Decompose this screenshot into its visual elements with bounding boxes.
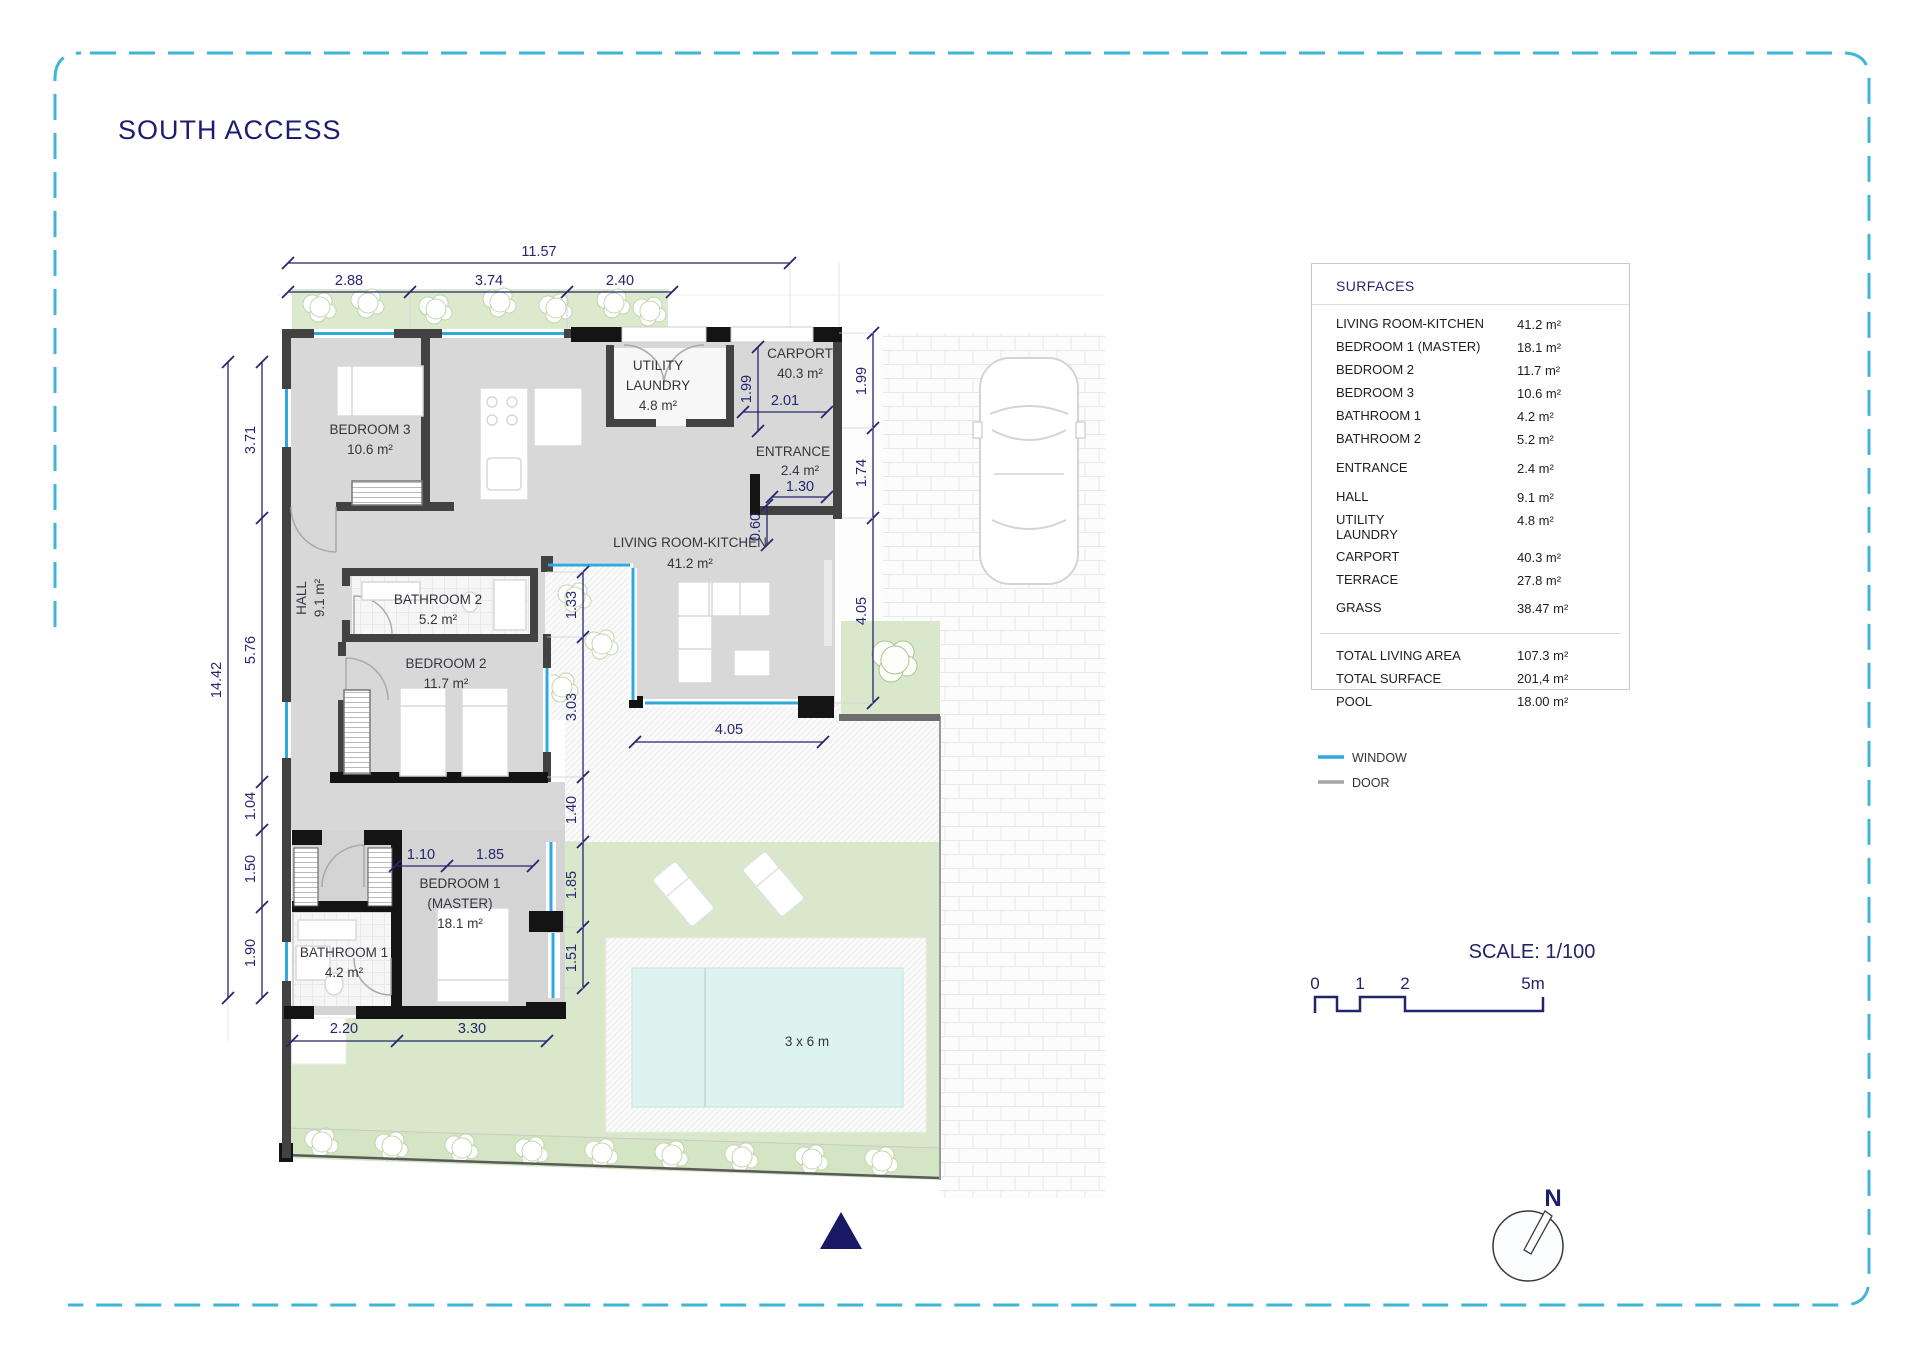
car-outline <box>973 358 1085 584</box>
dim: 2.20 <box>330 1021 358 1037</box>
label-pool-size: 3 x 6 m <box>785 1034 829 1049</box>
bathroom2-shower <box>494 580 526 630</box>
floor-plan-drawing: 11.57 2.88 3.74 2.40 14.42 3.71 5.76 1.0… <box>0 0 1920 1357</box>
surface-row: LIVING ROOM-KITCHEN41.2 m² <box>1336 313 1619 336</box>
surface-row: BATHROOM 14.2 m² <box>1336 405 1619 428</box>
dim: 2.01 <box>771 393 799 409</box>
surface-row: POOL18.00 m² <box>1336 690 1621 713</box>
surface-value: 5.2 m² <box>1517 432 1554 447</box>
dim-total-width: 11.57 <box>521 244 556 260</box>
surface-value: 18.1 m² <box>1517 340 1561 355</box>
surface-value: 38.47 m² <box>1517 601 1568 616</box>
surfaces-totals: TOTAL LIVING AREA107.3 m²TOTAL SURFACE20… <box>1320 633 1621 713</box>
surface-row: TOTAL SURFACE201,4 m² <box>1336 667 1621 690</box>
surface-value: 107.3 m² <box>1517 648 1568 663</box>
label-area: 4.8 m² <box>639 398 678 413</box>
label-area: 5.2 m² <box>419 612 458 627</box>
bathroom1-vanity <box>298 920 356 940</box>
north-label: N <box>1544 1185 1561 1212</box>
dining-table <box>534 388 582 446</box>
floor-plan-page: 11.57 2.88 3.74 2.40 14.42 3.71 5.76 1.0… <box>0 0 1920 1357</box>
surface-label: TOTAL LIVING AREA <box>1336 648 1517 663</box>
bed-bedroom2 <box>462 688 508 776</box>
label-area: 18.1 m² <box>437 916 483 931</box>
surface-row: TERRACE27.8 m² <box>1336 569 1619 592</box>
dim: 1.99 <box>739 375 755 403</box>
label-bedroom1b: (MASTER) <box>427 896 492 911</box>
surface-label: CARPORT <box>1336 550 1517 565</box>
surface-value: 201,4 m² <box>1517 671 1568 686</box>
surface-value: 18.00 m² <box>1517 694 1568 709</box>
dim: 3.30 <box>458 1021 486 1037</box>
dim: 1.10 <box>407 847 435 863</box>
surface-value: 11.7 m² <box>1517 363 1560 378</box>
label-area: 40.3 m² <box>777 366 823 381</box>
window-legend-label: WINDOW <box>1352 751 1407 765</box>
label-entrance: ENTRANCE <box>756 444 830 459</box>
surface-row: CARPORT40.3 m² <box>1336 546 1619 569</box>
surface-row: TOTAL LIVING AREA107.3 m² <box>1336 644 1621 667</box>
surface-row: BEDROOM 211.7 m² <box>1336 359 1619 382</box>
surface-label: BATHROOM 1 <box>1336 409 1517 424</box>
dim: 5.76 <box>243 636 259 664</box>
pool <box>632 968 903 1107</box>
scale-tick: 2 <box>1400 974 1409 993</box>
label-bedroom1: BEDROOM 1 <box>419 876 500 891</box>
scale-bar-line <box>1315 997 1543 1013</box>
surface-label: POOL <box>1336 694 1517 709</box>
dim: 3.03 <box>564 693 580 721</box>
surface-value: 40.3 m² <box>1517 550 1561 565</box>
entrance-door-gap <box>731 327 813 342</box>
dim: 2.40 <box>606 273 634 289</box>
surface-value: 4.2 m² <box>1517 409 1554 424</box>
surface-row: BEDROOM 310.6 m² <box>1336 382 1619 405</box>
surface-label: BATHROOM 2 <box>1336 432 1517 447</box>
label-bathroom2: BATHROOM 2 <box>394 592 482 607</box>
surface-row: BATHROOM 25.2 m² <box>1336 428 1619 451</box>
dim: 3.74 <box>475 273 503 289</box>
label-area: 2.4 m² <box>781 463 820 478</box>
label-bedroom3: BEDROOM 3 <box>329 422 410 437</box>
coffee-table <box>734 650 770 676</box>
door-legend-label: DOOR <box>1352 776 1390 790</box>
surface-row: ENTRANCE2.4 m² <box>1336 457 1619 480</box>
surface-row: GRASS38.47 m² <box>1336 597 1619 620</box>
surface-label: LIVING ROOM-KITCHEN <box>1336 317 1517 332</box>
dim: 1.04 <box>243 792 259 820</box>
dim-total-height: 14.42 <box>209 662 225 698</box>
legend: WINDOW DOOR <box>1318 751 1407 790</box>
surface-row: BEDROOM 1 (MASTER)18.1 m² <box>1336 336 1619 359</box>
south-access-arrow <box>820 1212 862 1249</box>
dim: 4.05 <box>715 722 743 738</box>
surface-label: BEDROOM 1 (MASTER) <box>1336 340 1517 355</box>
dim: 1.50 <box>243 855 259 883</box>
compass: N <box>1493 1185 1563 1281</box>
surface-label: TERRACE <box>1336 573 1517 588</box>
surface-label: BEDROOM 2 <box>1336 363 1517 378</box>
surfaces-panel: SURFACES LIVING ROOM-KITCHEN41.2 m²BEDRO… <box>1311 263 1630 690</box>
scale-title: SCALE: 1/100 <box>1469 941 1596 963</box>
driveway-pavers <box>940 716 1105 1198</box>
dim: 4.05 <box>854 597 870 625</box>
surface-row: UTILITY LAUNDRY4.8 m² <box>1336 509 1619 546</box>
dim: 1.74 <box>854 459 870 487</box>
label-area: 41.2 m² <box>667 556 713 571</box>
surface-label: GRASS <box>1336 601 1517 616</box>
kitchen-sink <box>487 458 521 490</box>
label-carport: CARPORT <box>767 346 833 361</box>
label-utility: UTILITY <box>633 358 683 373</box>
bed-bedroom2 <box>400 688 446 776</box>
label-area: 11.7 m² <box>424 676 469 691</box>
label-area: 9.1 m² <box>312 578 327 617</box>
closet <box>368 848 392 906</box>
label-hall: HALL <box>294 581 309 615</box>
label-living: LIVING ROOM-KITCHEN <box>613 535 767 550</box>
dim: 1.40 <box>564 796 580 824</box>
surfaces-header: SURFACES <box>1336 278 1629 294</box>
closet <box>294 848 318 906</box>
dim: 1.90 <box>243 939 259 967</box>
label-utility2: LAUNDRY <box>626 378 690 393</box>
terrace <box>565 701 940 842</box>
dim: 1.99 <box>854 367 870 395</box>
surface-label: ENTRANCE <box>1336 461 1517 476</box>
surface-label: HALL <box>1336 490 1517 505</box>
scale-tick: 5m <box>1521 974 1545 993</box>
surfaces-rows: LIVING ROOM-KITCHEN41.2 m²BEDROOM 1 (MAS… <box>1312 313 1629 620</box>
label-area: 10.6 m² <box>347 442 393 457</box>
surface-value: 27.8 m² <box>1517 573 1561 588</box>
tv-bench <box>824 560 832 646</box>
scale-tick: 1 <box>1355 974 1364 993</box>
label-bathroom1: BATHROOM 1 <box>300 945 388 960</box>
bed-bedroom3 <box>337 366 423 416</box>
surface-label: UTILITY LAUNDRY <box>1336 513 1517 542</box>
surface-value: 2.4 m² <box>1517 461 1554 476</box>
label-area: 4.2 m² <box>325 965 364 980</box>
header-divider <box>1312 304 1629 305</box>
surface-row: HALL9.1 m² <box>1336 486 1619 509</box>
surface-label: BEDROOM 3 <box>1336 386 1517 401</box>
surface-value: 10.6 m² <box>1517 386 1561 401</box>
scale-tick: 0 <box>1310 974 1319 993</box>
dim: 1.30 <box>786 479 814 495</box>
page-title: SOUTH ACCESS <box>118 115 342 146</box>
surface-label: TOTAL SURFACE <box>1336 671 1517 686</box>
scale-bar: SCALE: 1/100 0 1 2 5m <box>1310 941 1595 1013</box>
label-bedroom2: BEDROOM 2 <box>405 656 486 671</box>
dim: 1.33 <box>564 591 580 619</box>
wardrobe-bedroom3 <box>352 481 422 505</box>
surface-value: 4.8 m² <box>1517 513 1554 542</box>
dim: 3.71 <box>243 426 259 454</box>
surface-value: 9.1 m² <box>1517 490 1554 505</box>
dim: 1.51 <box>564 944 580 972</box>
wardrobe-bedroom2 <box>344 690 370 774</box>
dim: 1.85 <box>476 847 504 863</box>
dim: 2.88 <box>335 273 363 289</box>
dim: 1.85 <box>564 871 580 899</box>
surface-value: 41.2 m² <box>1517 317 1561 332</box>
